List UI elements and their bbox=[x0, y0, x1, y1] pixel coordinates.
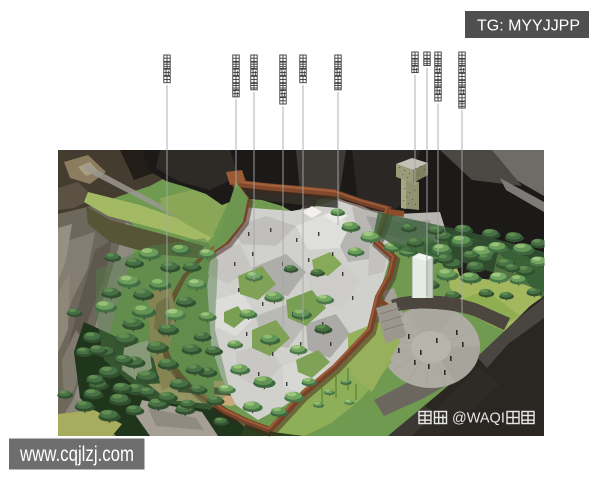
svg-text:TG: MYYJJPP: TG: MYYJJPP bbox=[477, 18, 580, 35]
svg-text:www.cqjlzj.com: www.cqjlzj.com bbox=[19, 443, 134, 466]
svg-text:@WAQI: @WAQI bbox=[452, 411, 505, 427]
